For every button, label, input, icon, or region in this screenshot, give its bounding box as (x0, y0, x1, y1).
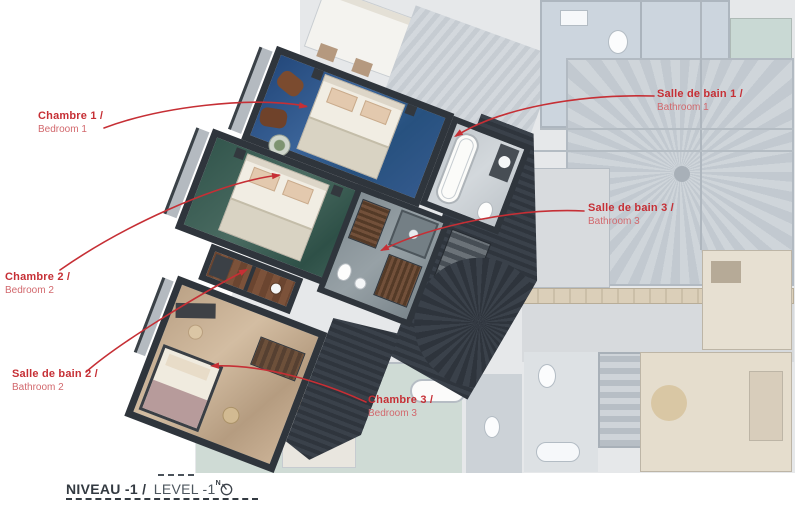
label-chambre-2-fr: Chambre 2 / (5, 271, 70, 285)
toilet (475, 199, 496, 222)
vanity-sink (489, 144, 520, 183)
label-chambre-3-en: Bedroom 3 (368, 408, 433, 421)
partition-wall (243, 266, 256, 292)
floorplan-canvas: Chambre 1 / Bedroom 1 Salle de bain 1 / … (0, 0, 800, 513)
wardrobe (250, 336, 306, 381)
label-chambre-2-en: Bedroom 2 (5, 285, 70, 298)
label-chambre-2: Chambre 2 / Bedroom 2 (5, 271, 70, 297)
level-title-fr: NIVEAU -1 / (66, 481, 146, 497)
label-salle-de-bain-2-en: Bathroom 2 (12, 382, 98, 395)
dashed-line-fragment (158, 474, 194, 476)
level-caption: NIVEAU -1 / LEVEL -1N (66, 481, 234, 499)
sink (353, 276, 369, 292)
nightstand (404, 104, 417, 117)
vanity (208, 254, 233, 281)
faded-room (640, 352, 792, 472)
label-chambre-1-en: Bedroom 1 (38, 124, 103, 137)
label-chambre-3-fr: Chambre 3 / (368, 394, 433, 408)
label-salle-de-bain-3-fr: Salle de bain 3 / (588, 202, 674, 216)
caption-underline (66, 498, 258, 500)
chair (186, 322, 205, 341)
label-chambre-3: Chambre 3 / Bedroom 3 (368, 394, 433, 420)
pouf (259, 106, 289, 129)
pouf (220, 404, 242, 426)
pouf (274, 68, 306, 99)
bed (296, 74, 405, 180)
faded-room (702, 250, 792, 350)
label-salle-de-bain-2-fr: Salle de bain 2 / (12, 368, 98, 382)
compass-north-letter: N (216, 480, 221, 487)
toilet (335, 261, 355, 283)
label-salle-de-bain-1: Salle de bain 1 / Bathroom 1 (657, 88, 743, 114)
wardrobe (373, 254, 422, 308)
faded-bathroom (524, 352, 598, 472)
label-chambre-1-fr: Chambre 1 / (38, 110, 103, 124)
shower (388, 209, 439, 259)
label-salle-de-bain-3: Salle de bain 3 / Bathroom 3 (588, 202, 674, 228)
label-salle-de-bain-1-fr: Salle de bain 1 / (657, 88, 743, 102)
level-title-en: LEVEL -1 (154, 481, 216, 497)
label-salle-de-bain-3-en: Bathroom 3 (588, 216, 674, 229)
nightstand (330, 185, 343, 198)
desk (176, 303, 216, 319)
faded-wall-line (540, 128, 794, 130)
faded-wall-line (700, 0, 702, 250)
bed (139, 344, 224, 432)
label-chambre-1: Chambre 1 / Bedroom 1 (38, 110, 103, 136)
wardrobe (348, 199, 391, 249)
label-salle-de-bain-2: Salle de bain 2 / Bathroom 2 (12, 368, 98, 394)
bed (218, 153, 330, 261)
label-salle-de-bain-1-en: Bathroom 1 (657, 102, 743, 115)
sink (268, 281, 284, 297)
